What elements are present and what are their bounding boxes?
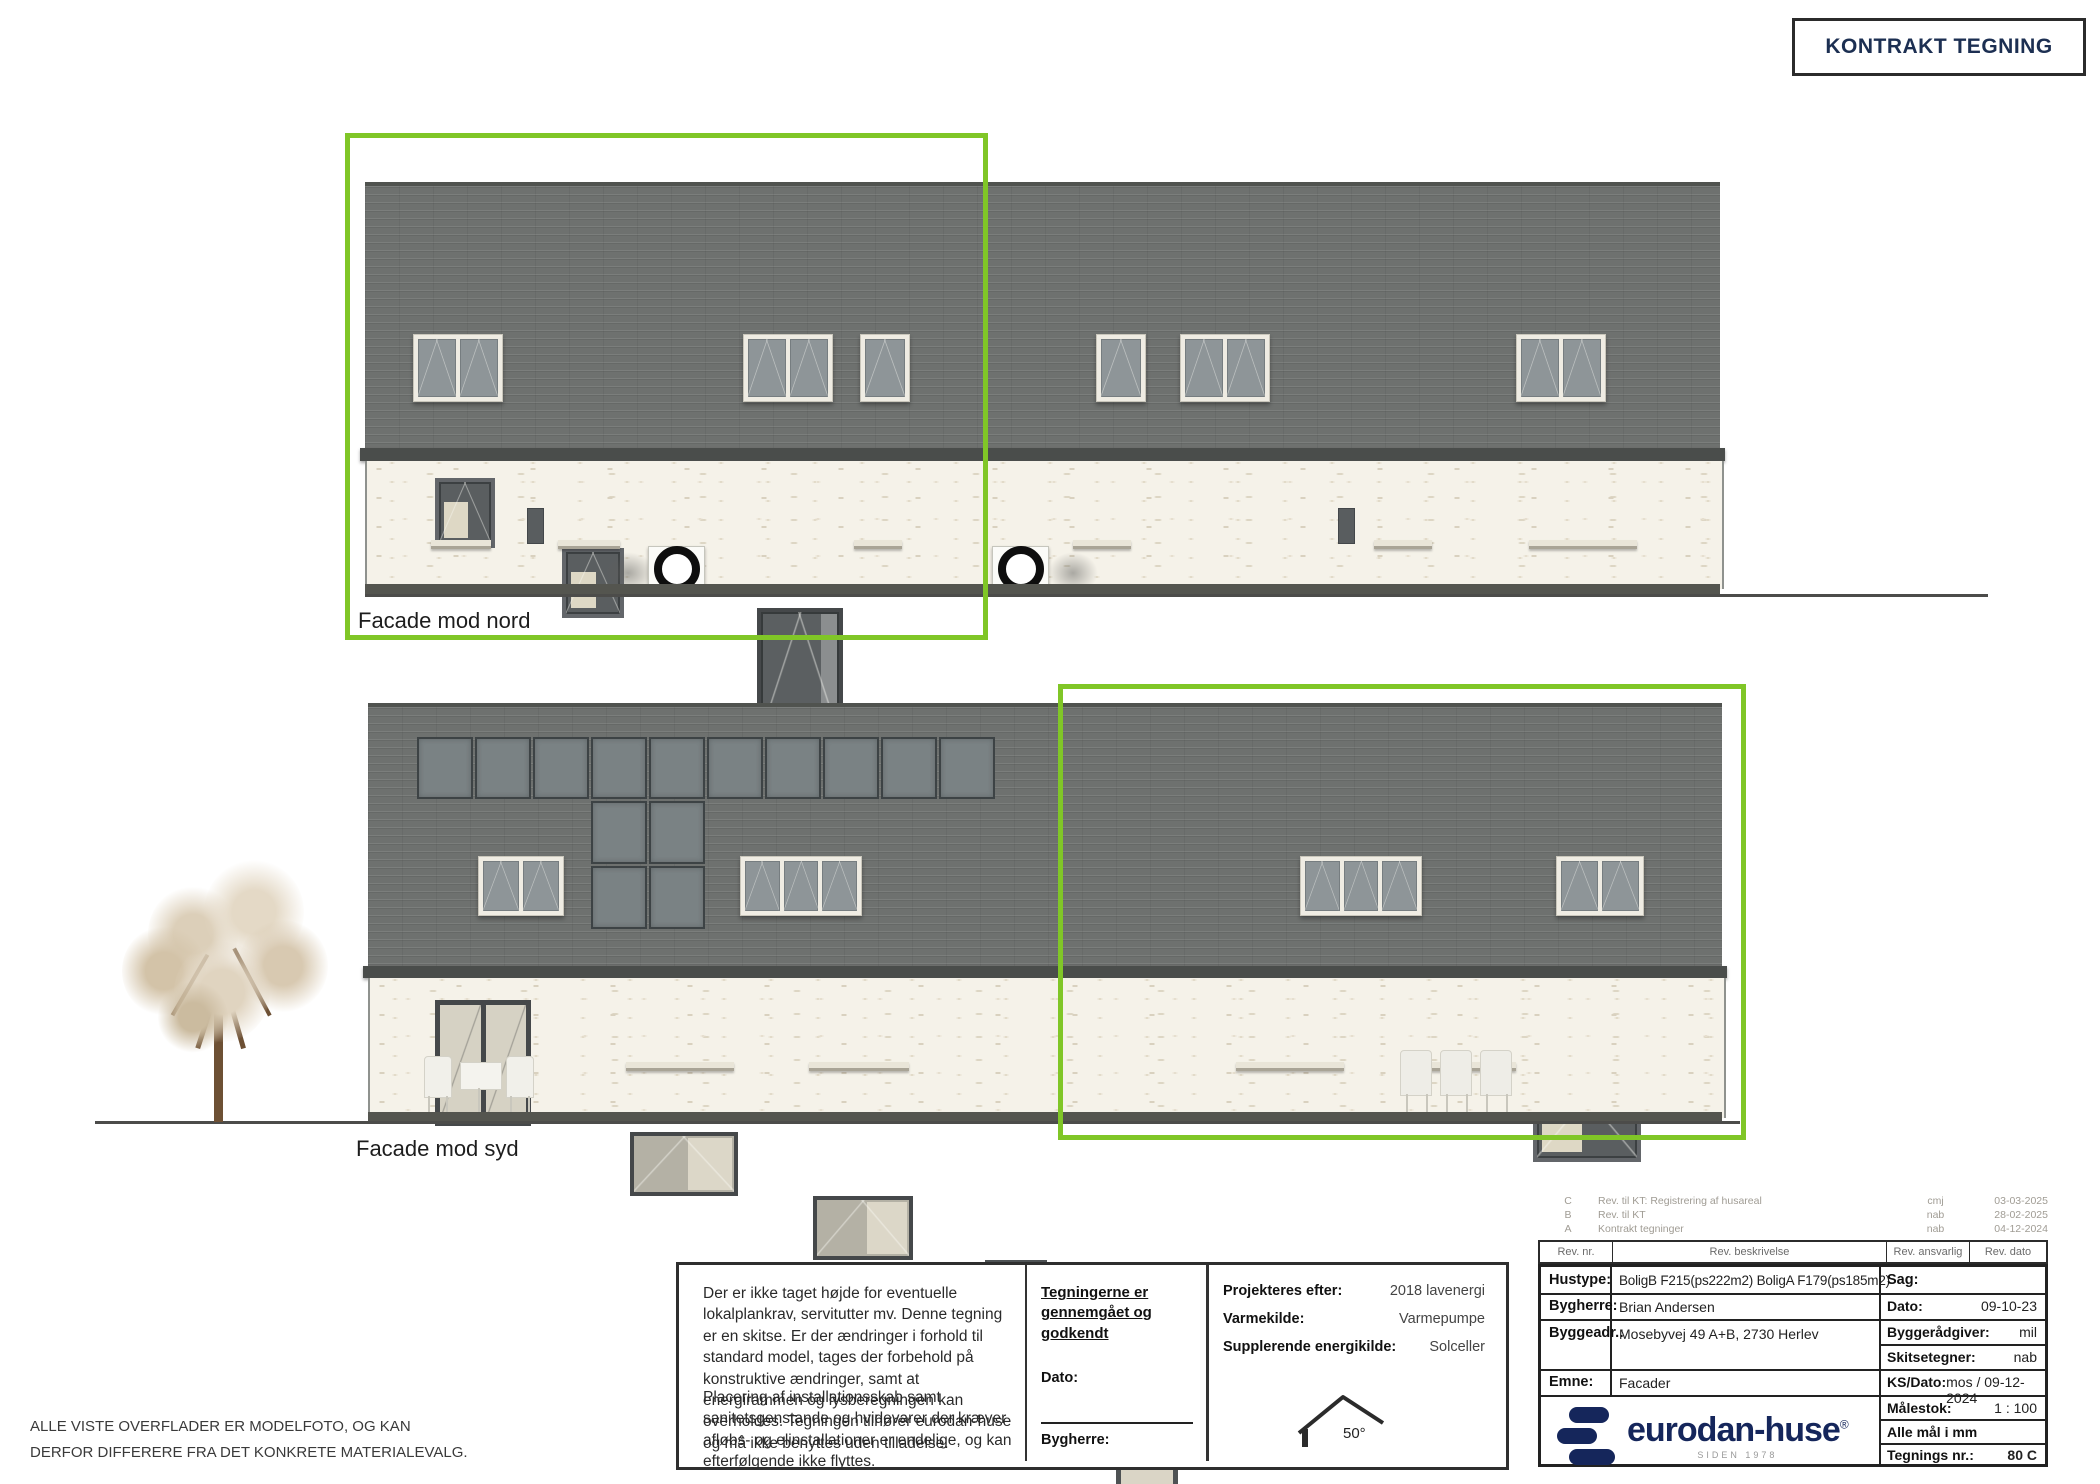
malestok-value: 1 : 100 — [1994, 1400, 2037, 1416]
rev-no: C — [1538, 1195, 1598, 1207]
solar-panel — [591, 866, 647, 929]
notes-block: Der er ikke taget højde for eventuelle l… — [676, 1262, 1509, 1470]
signature-line — [1041, 1422, 1193, 1424]
bygherre-label: Bygherre: — [1549, 1298, 1618, 1314]
roof-pitch-icon: 50° — [1291, 1385, 1401, 1447]
dato-value: 09-10-23 — [1981, 1298, 2037, 1314]
roof-window-icon — [1180, 334, 1270, 402]
rev-resp: cmj — [1898, 1195, 1973, 1207]
notes-paragraph-2: Placering af installationsskab samt sani… — [703, 1387, 1025, 1473]
approval-title-line2: gennemgået og godkendt — [1041, 1303, 1201, 1344]
byggeadr-label: Byggeadr.: — [1549, 1325, 1624, 1341]
materials-footnote-line2: DERFOR DIFFERERE FRA DET KONKRETE MATERI… — [30, 1440, 468, 1466]
roof-window-icon — [740, 856, 862, 916]
window-sill — [626, 1062, 734, 1071]
materials-footnote: ALLE VISTE OVERFLADER ER MODELFOTO, OG K… — [30, 1414, 468, 1465]
approval-date-label: Dato: — [1041, 1370, 1201, 1386]
divider — [1541, 1319, 2045, 1321]
rev-date: 03-03-2025 — [1973, 1195, 2048, 1207]
solar-panel — [649, 801, 705, 864]
logo-name: eurodan-huse — [1627, 1411, 1840, 1449]
logo-registered-mark: ® — [1840, 1417, 1848, 1431]
divider — [1879, 1419, 2045, 1421]
window-icon — [630, 1132, 738, 1196]
eurodan-logo-icon — [1557, 1407, 1617, 1465]
solar-panel-row — [417, 737, 995, 799]
solar-panel — [939, 737, 995, 799]
solar-panel — [417, 737, 473, 799]
tegnings-nr-value: 80 C — [2007, 1447, 2037, 1463]
title-block: Hustype: BoligB F215(ps222m2) BoligA F17… — [1538, 1264, 2048, 1467]
window-sill — [1374, 540, 1432, 549]
byggeadr-value: Mosebyvej 49 A+B, 2730 Herlev — [1619, 1326, 1819, 1342]
solar-panel — [475, 737, 531, 799]
roof-window-icon — [478, 856, 564, 916]
facade-north-label: Facade mod nord — [358, 608, 530, 634]
drawing-sheet: KONTRAKT TEGNING — [0, 0, 2100, 1484]
divider — [1879, 1267, 1881, 1464]
energy-value: 2018 lavenergi — [1390, 1283, 1485, 1299]
rev-resp: nab — [1898, 1209, 1973, 1221]
revision-row: C Rev. til KT: Registrering af husareal … — [1538, 1194, 2048, 1208]
dato-label: Dato: — [1887, 1298, 1923, 1314]
rev-desc: Kontrakt tegninger — [1598, 1223, 1898, 1235]
rev-resp: nab — [1898, 1223, 1973, 1235]
skitsetegner-label: Skitsetegner: — [1887, 1349, 1976, 1365]
divider — [1879, 1443, 2045, 1445]
rev-desc: Rev. til KT — [1598, 1209, 1898, 1221]
facade-south-label: Facade mod syd — [356, 1136, 519, 1162]
approval-section: Tegningerne er gennemgået og godkendt Da… — [1041, 1283, 1201, 1484]
byggeradgiver-value: mil — [2019, 1324, 2037, 1340]
rev-desc: Rev. til KT: Registrering af husareal — [1598, 1195, 1898, 1207]
rev-header-no: Rev. nr. — [1540, 1242, 1613, 1262]
solar-panel — [591, 737, 647, 799]
rev-header-date: Rev. dato — [1970, 1242, 2046, 1262]
rev-header-resp: Rev. ansvarlig — [1887, 1242, 1970, 1262]
revision-header: Rev. nr. Rev. beskrivelse Rev. ansvarlig… — [1538, 1240, 2048, 1264]
rev-no: B — [1538, 1209, 1598, 1221]
north-highlight-box — [345, 133, 988, 640]
window-sill — [1073, 540, 1131, 549]
energy-label: Projekteres efter: — [1223, 1283, 1342, 1299]
solar-panel — [765, 737, 821, 799]
divider — [1206, 1265, 1209, 1461]
energy-label: Supplerende energikilde: — [1223, 1339, 1396, 1355]
rev-date: 28-02-2025 — [1973, 1209, 2048, 1221]
energy-label: Varmekilde: — [1223, 1311, 1304, 1327]
window-icon — [813, 1196, 913, 1260]
divider — [1025, 1265, 1027, 1461]
facade-south-drawing: Facade mod syd — [0, 660, 2100, 1180]
byggeradgiver-label: Byggerådgiver: — [1887, 1324, 1990, 1340]
bygherre-value: Brian Andersen — [1619, 1299, 1715, 1315]
meter-cabinet — [1338, 508, 1355, 544]
eurodan-logo: eurodan-huse® SIDEN 1978 — [1557, 1407, 1848, 1465]
hustype-value: BoligB F215(ps222m2) BoligA F179(ps185m2… — [1619, 1273, 1890, 1288]
revision-list: C Rev. til KT: Registrering af husareal … — [1538, 1194, 2048, 1236]
materials-footnote-line1: ALLE VISTE OVERFLADER ER MODELFOTO, OG K… — [30, 1414, 468, 1440]
skitsetegner-value: nab — [2014, 1349, 2037, 1365]
solar-panel — [823, 737, 879, 799]
revision-row: B Rev. til KT nab 28-02-2025 — [1538, 1208, 2048, 1222]
divider — [1541, 1293, 2045, 1295]
solar-panel — [707, 737, 763, 799]
solar-panel — [533, 737, 589, 799]
energy-value: Varmepumpe — [1399, 1311, 1485, 1327]
solar-panel — [649, 737, 705, 799]
logo-tagline: SIDEN 1978 — [1627, 1450, 1848, 1460]
approval-title-line1: Tegningerne er — [1041, 1283, 1201, 1303]
rev-no: A — [1538, 1223, 1598, 1235]
roof-window-icon — [1096, 334, 1146, 402]
rev-date: 04-12-2024 — [1973, 1223, 2048, 1235]
tree — [118, 860, 328, 1124]
divider — [1879, 1344, 2045, 1346]
solar-panel — [649, 866, 705, 929]
hustype-label: Hustype: — [1549, 1272, 1611, 1288]
solar-panel — [881, 737, 937, 799]
revision-row: A Kontrakt tegninger nab 04-12-2024 — [1538, 1222, 2048, 1236]
window-sill — [809, 1062, 909, 1071]
sag-label: Sag: — [1887, 1272, 1918, 1288]
energy-value: Solceller — [1429, 1339, 1485, 1355]
roof-pitch-value: 50° — [1343, 1425, 1366, 1442]
divider — [1541, 1369, 2045, 1371]
solar-panel — [591, 801, 647, 864]
emne-value: Facader — [1619, 1375, 1670, 1391]
tegnings-nr-label: Tegnings nr.: — [1887, 1447, 1974, 1463]
rev-header-desc: Rev. beskrivelse — [1613, 1242, 1887, 1262]
approval-owner-label: Bygherre: — [1041, 1432, 1201, 1448]
solar-panel-block — [591, 801, 705, 929]
energy-section: Projekteres efter:2018 lavenergi Varmeki… — [1223, 1283, 1485, 1447]
window-sill — [1529, 540, 1637, 549]
roof-window-icon — [1516, 334, 1606, 402]
emne-label: Emne: — [1549, 1374, 1593, 1390]
alle-mal-note: Alle mål i mm — [1887, 1424, 1977, 1440]
malestok-label: Målestok: — [1887, 1400, 1952, 1416]
south-highlight-box — [1058, 684, 1746, 1140]
garden-furniture — [420, 1052, 536, 1116]
facade-north-drawing: Facade mod nord — [0, 0, 2100, 660]
